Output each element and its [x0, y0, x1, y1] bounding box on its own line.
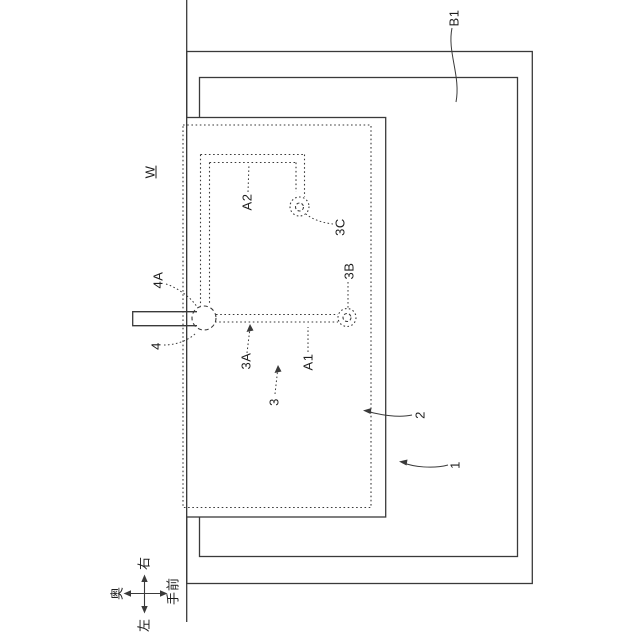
- label-a1: A1: [302, 354, 315, 371]
- label-4a: 4A: [152, 272, 165, 289]
- compass-arrow-down: [141, 606, 147, 614]
- arrowhead-1: [399, 460, 408, 466]
- label-3c: 3C: [334, 218, 347, 236]
- compass-arrow-left: [124, 590, 132, 596]
- compass-cross: [124, 575, 168, 614]
- label-3: 3: [268, 398, 281, 406]
- label-w: W: [144, 166, 157, 179]
- figure-linework: [0, 0, 640, 640]
- patent-figure-canvas: B1 W A2 3C 3B 4A 4 3A A1 3 2 1 右 奥 左 手前: [0, 0, 640, 640]
- compass-label-left-direction: 左: [138, 618, 151, 632]
- label-3b: 3B: [343, 263, 356, 280]
- label-b1: B1: [448, 10, 461, 27]
- compass-label-right-direction: 右: [138, 556, 151, 570]
- label-3a: 3A: [240, 353, 253, 370]
- leader-b1: [451, 28, 457, 102]
- compass-arrow-up: [141, 575, 147, 583]
- label-a2: A2: [241, 194, 254, 211]
- compass-label-front-direction: 手前: [167, 577, 180, 605]
- unit-2-outline: [187, 118, 386, 518]
- label-4: 4: [150, 342, 163, 350]
- compass-label-back-direction: 奥: [111, 586, 124, 600]
- label-1: 1: [449, 461, 462, 469]
- label-2: 2: [414, 411, 427, 419]
- leader-1: [402, 463, 448, 468]
